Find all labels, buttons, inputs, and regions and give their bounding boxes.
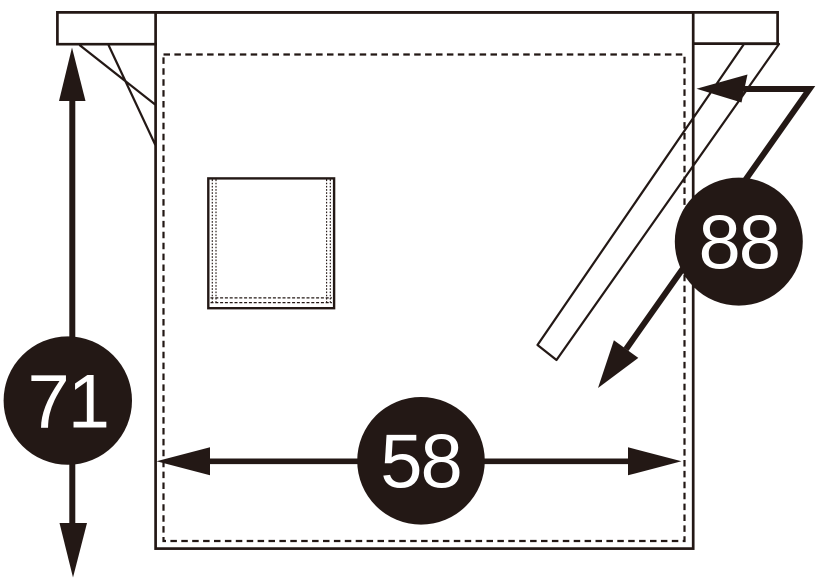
height-dimension-value: 71 — [28, 360, 109, 445]
left-tie-strap — [80, 45, 158, 149]
dimension-height: 71 — [4, 48, 132, 578]
diagram-canvas: 71 58 88 — [0, 0, 816, 587]
height-arrowhead-down — [60, 523, 88, 578]
height-arrowhead-up — [59, 48, 86, 102]
left-tie-lower-edge — [109, 45, 158, 149]
pocket — [208, 178, 334, 308]
left-tie-upper-edge — [80, 45, 158, 106]
pocket-outline — [208, 178, 334, 308]
tie-length-arrowhead-up — [697, 75, 748, 103]
width-dimension-value: 58 — [380, 420, 461, 505]
apron-dimension-diagram: 71 58 88 — [0, 0, 816, 587]
tie-length-dimension-value: 88 — [699, 201, 780, 286]
